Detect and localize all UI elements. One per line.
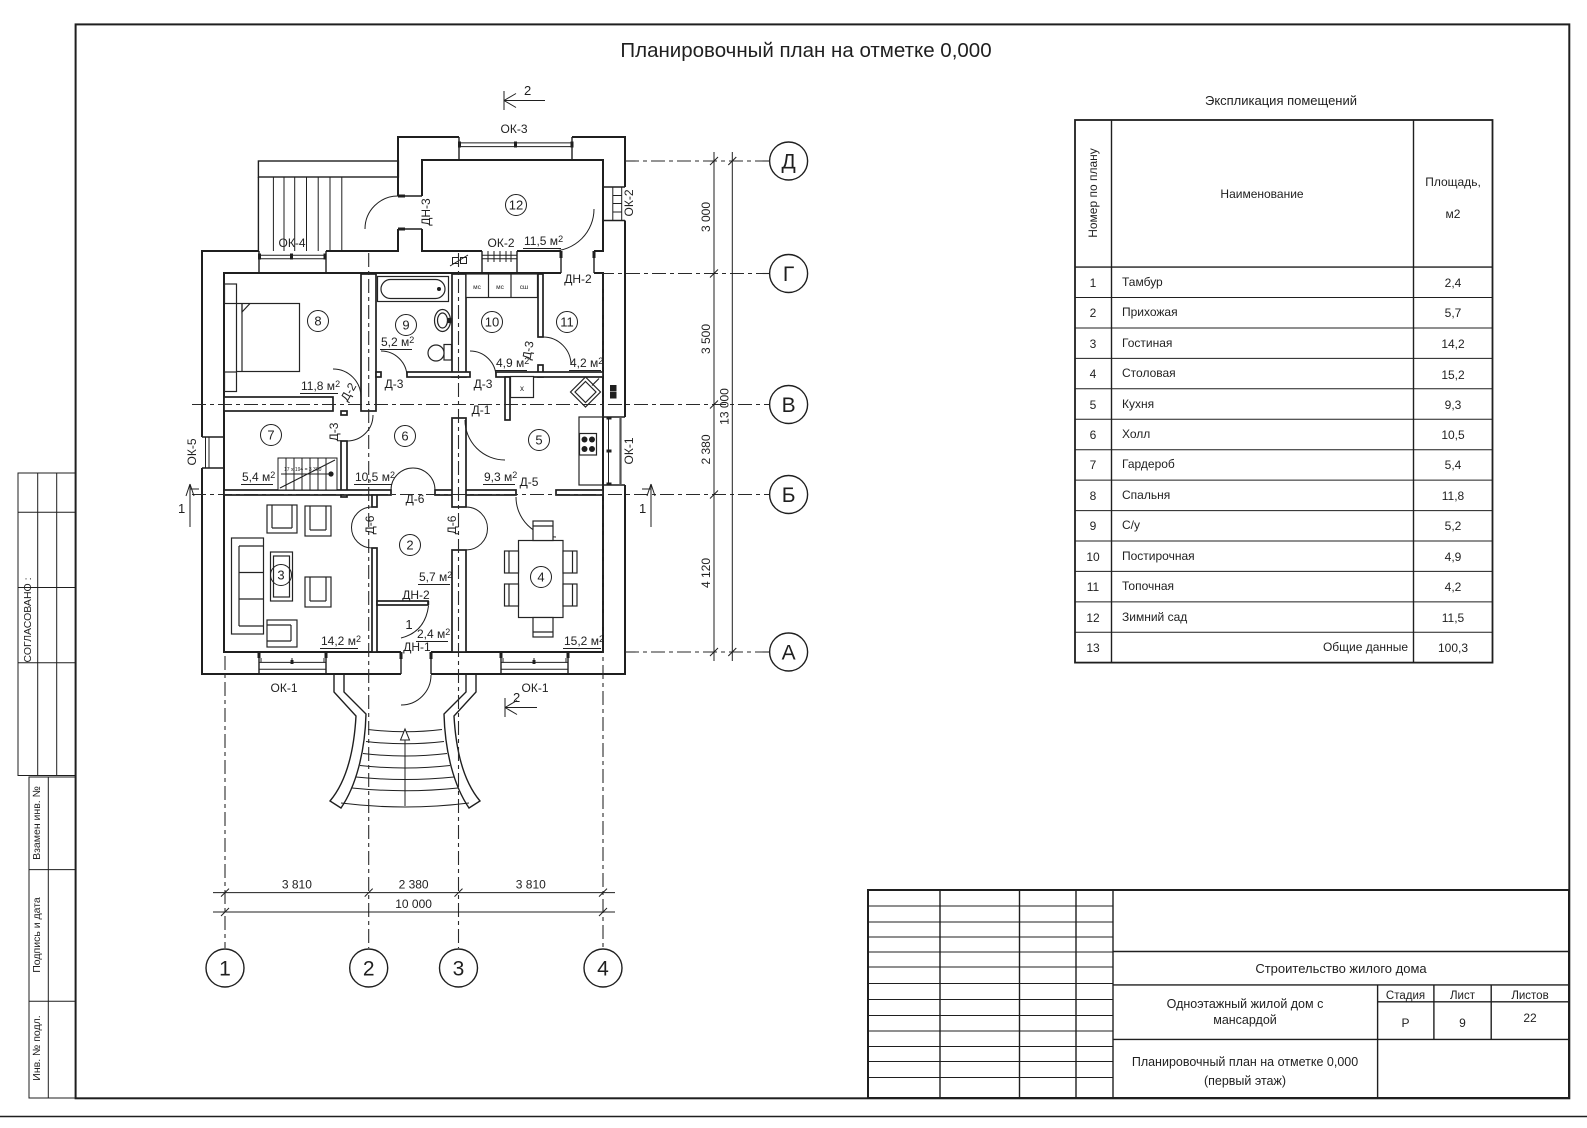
svg-text:Планировочный план на отметке: Планировочный план на отметке 0,000 [620, 39, 991, 62]
svg-text:1: 1 [639, 501, 646, 516]
svg-text:Д-1: Д-1 [472, 403, 491, 417]
svg-text:15,2: 15,2 [1441, 368, 1465, 382]
svg-text:12: 12 [509, 198, 523, 213]
svg-text:9: 9 [1090, 519, 1097, 533]
svg-text:4,2: 4,2 [1445, 580, 1462, 594]
svg-text:СОГЛАСОВАНО :: СОГЛАСОВАНО : [22, 577, 34, 662]
svg-text:А: А [782, 642, 796, 665]
svg-text:15,2 м2: 15,2 м2 [564, 634, 604, 648]
svg-text:мс: мс [473, 284, 481, 291]
svg-text:13: 13 [1086, 641, 1100, 655]
svg-text:9: 9 [402, 318, 409, 333]
svg-text:Б: Б [782, 484, 796, 507]
svg-text:11,5 м2: 11,5 м2 [524, 234, 563, 248]
svg-text:14,2: 14,2 [1441, 337, 1465, 351]
svg-text:3 000: 3 000 [699, 202, 713, 232]
svg-text:Д: Д [781, 151, 795, 174]
svg-text:С/у: С/у [1122, 518, 1140, 532]
svg-text:Подпись и дата: Подпись и дата [31, 897, 43, 973]
svg-text:ДН-3: ДН-3 [419, 198, 433, 226]
svg-text:2: 2 [1090, 306, 1097, 320]
svg-text:Д-6: Д-6 [406, 492, 425, 506]
svg-text:мс: мс [496, 284, 504, 291]
svg-text:4 120: 4 120 [699, 558, 713, 588]
svg-text:9,3: 9,3 [1445, 398, 1462, 412]
svg-text:3: 3 [277, 568, 284, 583]
svg-text:10 000: 10 000 [395, 897, 432, 911]
svg-text:Тамбур: Тамбур [1122, 275, 1163, 289]
svg-text:1: 1 [1090, 276, 1097, 290]
svg-text:Стадия: Стадия [1386, 990, 1425, 1002]
svg-text:мансардой: мансардой [1213, 1013, 1277, 1027]
svg-text:2 380: 2 380 [699, 434, 713, 464]
svg-text:Общие данные: Общие данные [1323, 640, 1408, 654]
svg-text:4: 4 [1090, 367, 1097, 381]
svg-text:Спальня: Спальня [1122, 488, 1170, 502]
svg-text:Площадь,: Площадь, [1425, 175, 1481, 189]
svg-text:Прихожая: Прихожая [1122, 305, 1178, 319]
svg-text:7: 7 [267, 428, 274, 443]
svg-text:22: 22 [1523, 1011, 1537, 1025]
svg-text:8: 8 [314, 314, 321, 329]
svg-text:ОК-2: ОК-2 [622, 189, 636, 216]
svg-text:11: 11 [560, 315, 574, 330]
svg-text:9: 9 [1459, 1016, 1466, 1030]
svg-text:В: В [782, 394, 796, 417]
svg-text:м2: м2 [1446, 207, 1461, 221]
svg-text:2: 2 [513, 690, 520, 705]
svg-text:12: 12 [1086, 611, 1100, 625]
svg-text:1: 1 [178, 501, 185, 516]
svg-text:сш: сш [520, 284, 528, 291]
svg-text:10: 10 [1086, 550, 1100, 564]
svg-text:Строительство жилого дома: Строительство жилого дома [1255, 961, 1427, 976]
svg-text:6: 6 [401, 429, 408, 444]
svg-text:11,8 м2: 11,8 м2 [301, 379, 340, 393]
svg-text:ОК-2: ОК-2 [488, 236, 515, 250]
svg-text:Д-6: Д-6 [445, 515, 459, 534]
svg-text:11,5: 11,5 [1442, 611, 1465, 625]
svg-text:5,4: 5,4 [1445, 458, 1462, 472]
svg-text:Д-3: Д-3 [474, 377, 493, 391]
svg-text:14,2 м2: 14,2 м2 [321, 634, 361, 648]
svg-text:3: 3 [453, 958, 465, 981]
svg-text:Лист: Лист [1450, 990, 1476, 1002]
svg-text:ДН-2: ДН-2 [564, 272, 592, 286]
svg-text:4,9: 4,9 [1445, 550, 1462, 564]
svg-text:ДН-2: ДН-2 [402, 588, 430, 602]
svg-text:ОК-1: ОК-1 [522, 681, 549, 695]
svg-text:Кухня: Кухня [1122, 397, 1154, 411]
svg-text:Д-3: Д-3 [327, 422, 341, 441]
svg-text:1: 1 [219, 958, 231, 981]
svg-text:5: 5 [535, 433, 542, 448]
svg-text:1: 1 [405, 617, 412, 632]
svg-text:ДН-1: ДН-1 [403, 640, 431, 654]
svg-text:2 380: 2 380 [399, 878, 429, 892]
svg-text:Топочная: Топочная [1122, 579, 1174, 593]
svg-text:Планировочный план на отметке: Планировочный план на отметке 0,000 [1132, 1055, 1358, 1069]
svg-text:Зимний сад: Зимний сад [1122, 610, 1187, 624]
svg-text:Листов: Листов [1511, 990, 1548, 1002]
svg-text:Столовая: Столовая [1122, 366, 1176, 380]
svg-text:2: 2 [406, 538, 413, 553]
svg-text:4: 4 [597, 958, 609, 981]
svg-text:Д-6: Д-6 [363, 515, 377, 534]
svg-text:Гостиная: Гостиная [1122, 336, 1172, 350]
svg-text:х: х [520, 384, 524, 393]
svg-text:5,2: 5,2 [1445, 519, 1462, 533]
svg-text:Одноэтажный жилой дом с: Одноэтажный жилой дом с [1167, 997, 1324, 1011]
svg-text:Холл: Холл [1122, 427, 1150, 441]
svg-text:Наименование: Наименование [1220, 187, 1304, 201]
svg-text:10,5: 10,5 [1441, 428, 1465, 442]
svg-text:(первый этаж): (первый этаж) [1204, 1074, 1286, 1088]
svg-text:6: 6 [1090, 428, 1097, 442]
svg-text:ОК-1: ОК-1 [271, 681, 298, 695]
svg-text:Гардероб: Гардероб [1122, 457, 1175, 471]
svg-text:11,8: 11,8 [1442, 489, 1465, 503]
svg-text:Р: Р [1401, 1016, 1409, 1030]
svg-text:100,3: 100,3 [1438, 641, 1468, 655]
svg-text:5: 5 [1090, 398, 1097, 412]
svg-text:2,4: 2,4 [1445, 276, 1462, 290]
svg-text:3 810: 3 810 [282, 878, 312, 892]
svg-text:10: 10 [485, 315, 499, 330]
svg-text:3: 3 [1090, 337, 1097, 351]
svg-text:Постирочная: Постирочная [1122, 549, 1195, 563]
svg-text:3 810: 3 810 [516, 878, 546, 892]
svg-text:ОК-3: ОК-3 [501, 122, 528, 136]
svg-text:ОК-1: ОК-1 [622, 437, 636, 464]
svg-text:Инв. № подл.: Инв. № подл. [31, 1015, 43, 1080]
svg-text:5,7: 5,7 [1445, 306, 1462, 320]
svg-text:17 x 194 = 3 300: 17 x 194 = 3 300 [284, 467, 322, 473]
svg-text:7: 7 [1090, 458, 1097, 472]
svg-text:ОК-5: ОК-5 [185, 438, 199, 465]
svg-text:Д-3: Д-3 [385, 377, 404, 391]
svg-text:Номер по плану: Номер по плану [1086, 148, 1100, 238]
svg-text:ОК-4: ОК-4 [279, 236, 306, 250]
svg-text:2: 2 [363, 958, 375, 981]
svg-text:Д-5: Д-5 [520, 475, 539, 489]
svg-text:3 500: 3 500 [699, 324, 713, 354]
svg-text:10,5 м2: 10,5 м2 [355, 470, 395, 484]
svg-text:2: 2 [524, 83, 531, 98]
svg-text:8: 8 [1090, 489, 1097, 503]
svg-text:Взамен инв. №: Взамен инв. № [31, 786, 43, 860]
svg-text:11: 11 [1087, 580, 1100, 594]
svg-text:Экспликация помещений: Экспликация помещений [1205, 93, 1357, 108]
svg-text:Г: Г [783, 263, 794, 286]
svg-text:13 000: 13 000 [718, 388, 732, 425]
svg-text:4: 4 [537, 570, 544, 585]
